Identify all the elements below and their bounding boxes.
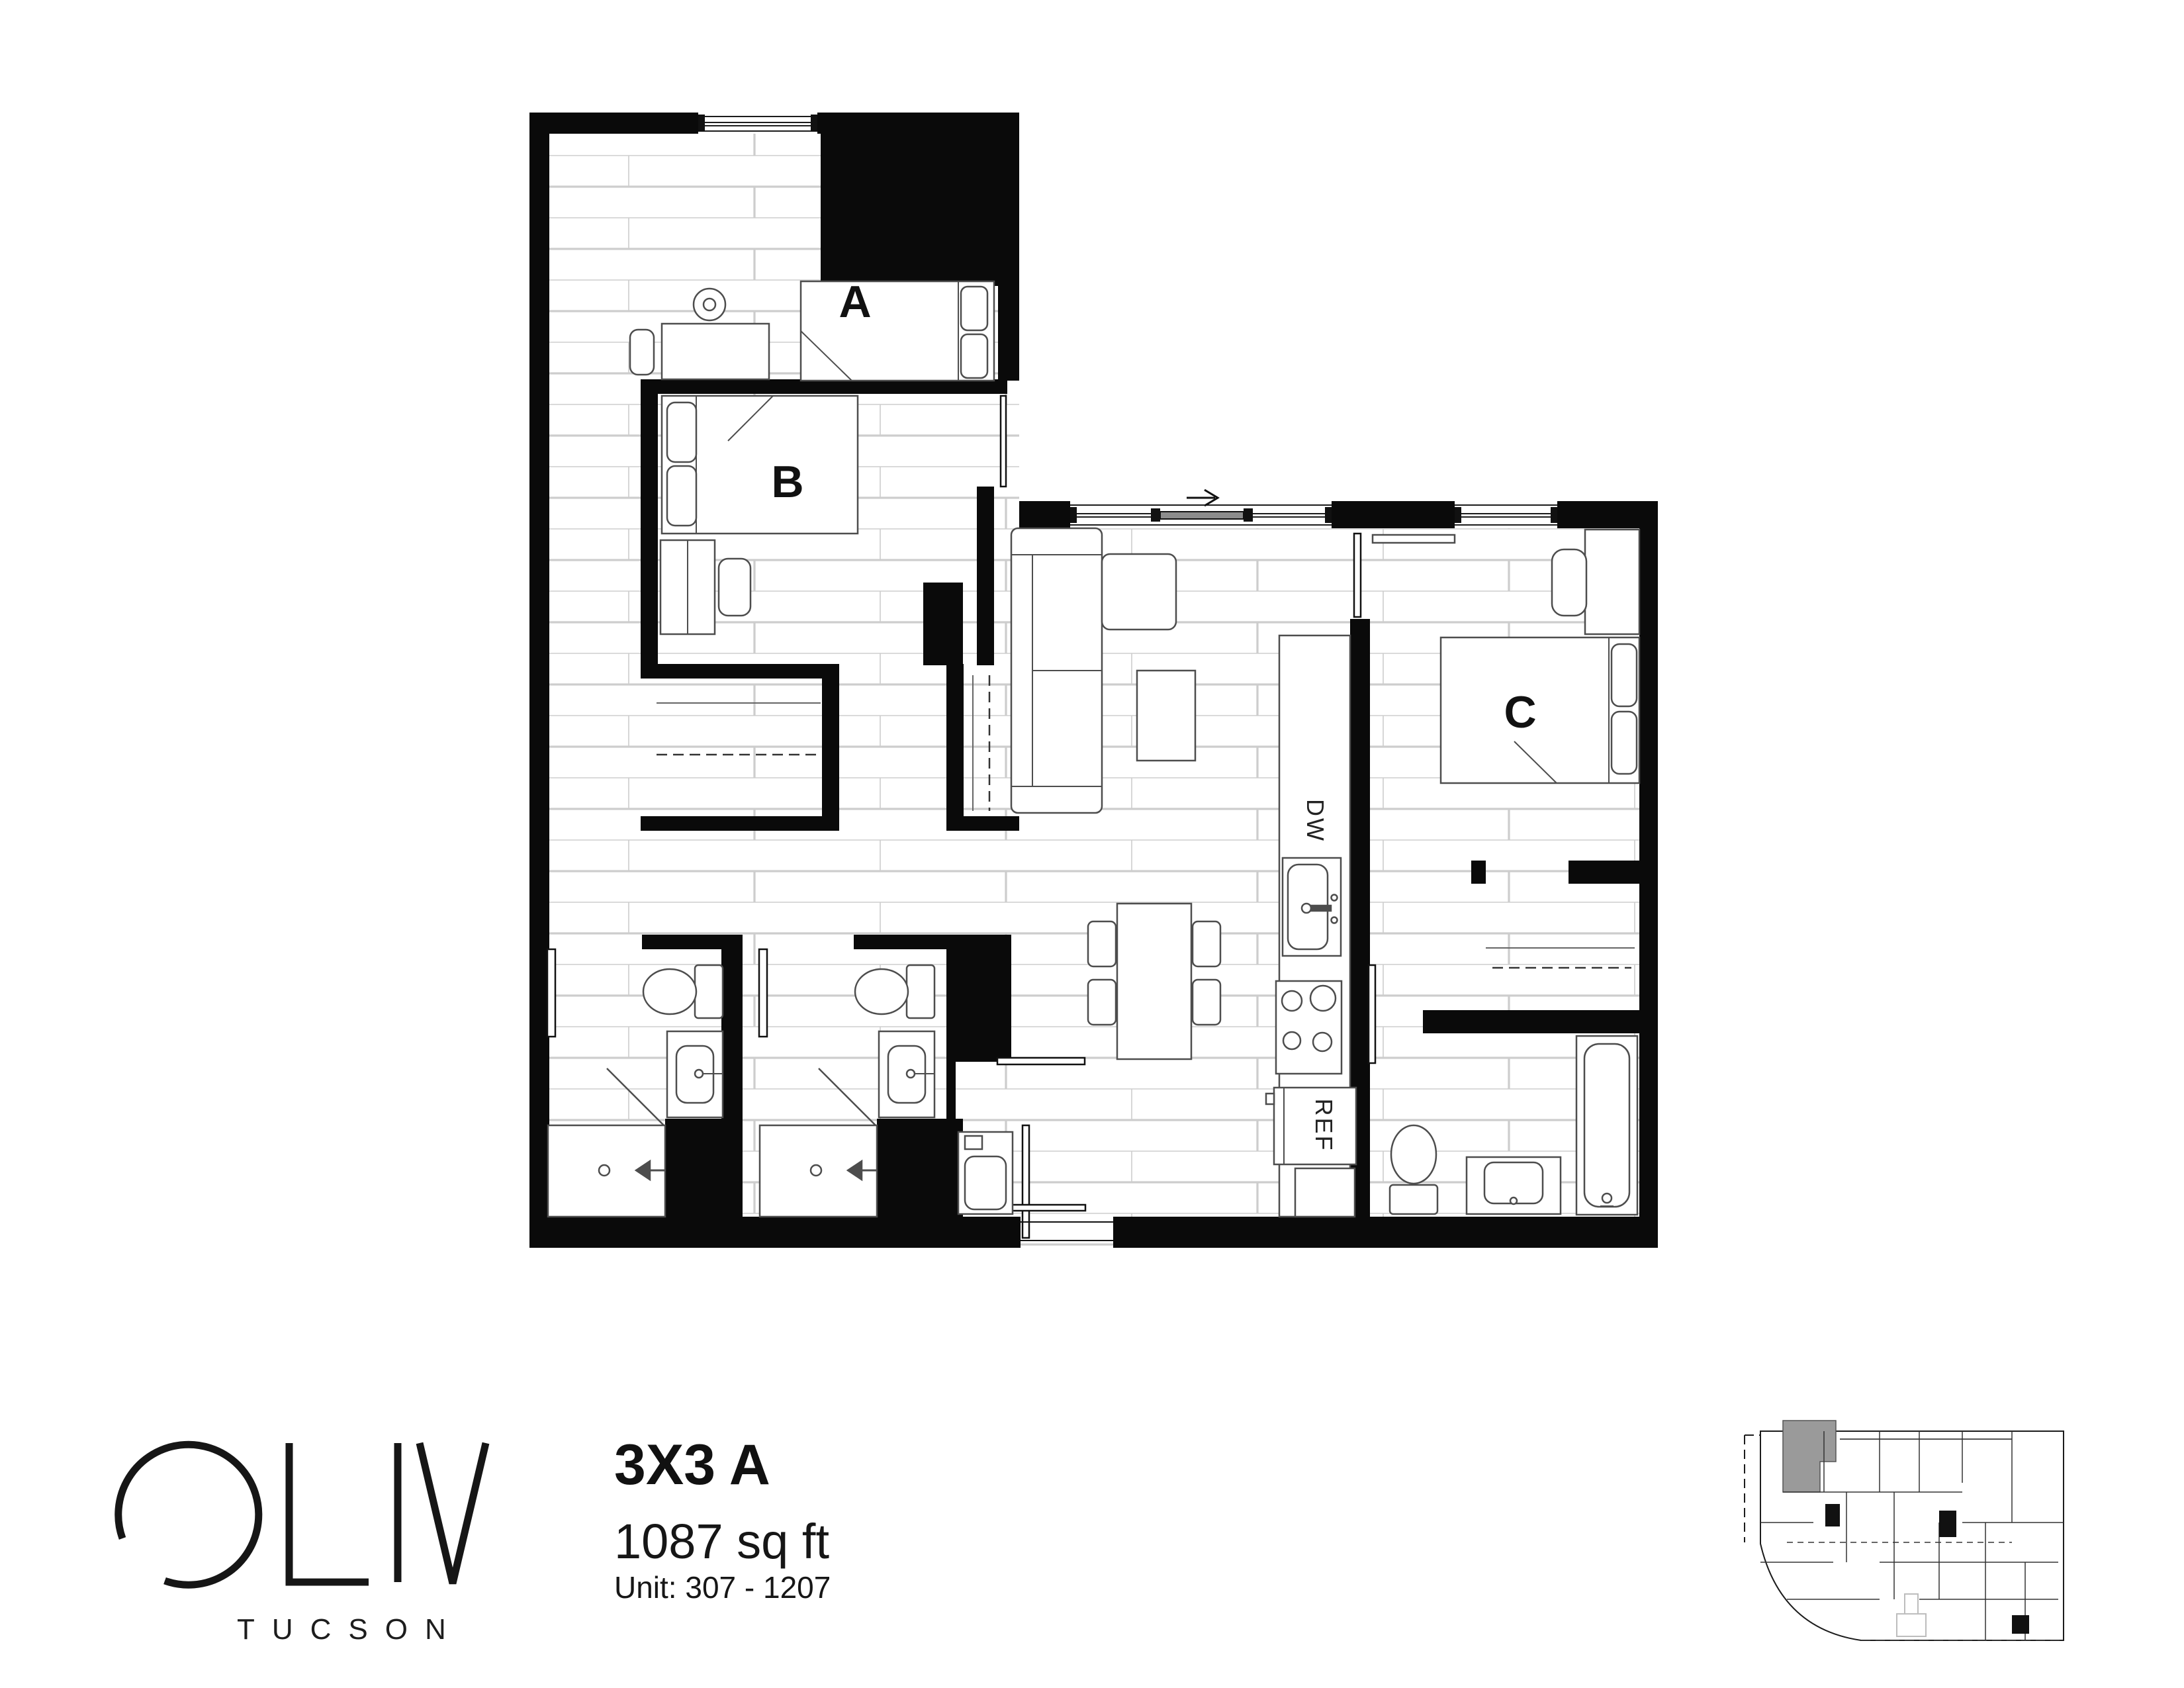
- room-label-b: B: [771, 457, 803, 507]
- room-label-c: C: [1504, 687, 1536, 737]
- floorplan-sheet: A B C DW REF TUCSON 3X3 A 1087 sq ft Uni…: [0, 0, 2184, 1688]
- room-label-a: A: [839, 277, 871, 327]
- dining-chair: [1193, 980, 1220, 1025]
- plan-area: 1087 sq ft: [614, 1514, 829, 1569]
- bed-a: [801, 281, 994, 381]
- plan-name: 3X3 A: [614, 1433, 770, 1497]
- toilet-icon: [1390, 1125, 1437, 1214]
- key-plan-faint-unit: [1897, 1594, 1926, 1636]
- door-hall: [1011, 1205, 1085, 1211]
- console-shelf: [1373, 535, 1455, 543]
- logo-v-glyph: [420, 1443, 486, 1583]
- dining-chair: [1193, 921, 1220, 966]
- dishwasher-label: DW: [1302, 799, 1329, 843]
- toilet-icon: [643, 965, 723, 1018]
- door-bath-1: [547, 949, 555, 1037]
- dining-chair: [1088, 980, 1116, 1025]
- bed-c: [1441, 637, 1639, 783]
- window-bedroom-a: [698, 113, 817, 134]
- bath1-vanity-sink-icon: [667, 1031, 723, 1117]
- refrigerator-label: REF: [1310, 1099, 1338, 1152]
- toilet-icon: [855, 965, 934, 1018]
- kitchen-sink-icon: [1283, 858, 1341, 956]
- door-laundry: [997, 1058, 1085, 1064]
- chair-c: [1552, 549, 1586, 616]
- stove-icon: [1276, 981, 1342, 1074]
- floor-plan-svg: A B C DW REF TUCSON 3X3 A 1087 sq ft Uni…: [0, 0, 2184, 1688]
- window-bedroom-c: [1455, 501, 1557, 528]
- key-plan-unit-highlight: [1783, 1421, 1836, 1492]
- sliding-door-panel: [1160, 512, 1244, 519]
- dining-chair: [1088, 921, 1116, 966]
- door-bath-c: [1369, 965, 1375, 1063]
- door-balcony: [1023, 1125, 1029, 1238]
- plant-icon-center: [704, 299, 715, 310]
- key-plan: [1745, 1421, 2064, 1640]
- logo-o-glyph: [118, 1444, 259, 1585]
- bathtub-icon: [1576, 1036, 1637, 1215]
- sofa-chaise: [1102, 554, 1176, 630]
- chair-a: [630, 330, 654, 375]
- bed-b: [662, 396, 858, 534]
- coffee-table: [1137, 671, 1195, 761]
- title-block: 3X3 A 1087 sq ft Unit: 307 - 1207: [614, 1433, 831, 1605]
- door-bedroom-c: [1354, 534, 1361, 617]
- desk-c: [1585, 530, 1639, 634]
- kitchen-cabinet: [1295, 1168, 1355, 1217]
- bathc-vanity-sink-icon: [1467, 1157, 1561, 1214]
- door-bath-2: [759, 949, 767, 1037]
- dining-table: [1117, 904, 1191, 1059]
- structural-corner-mass: [821, 113, 1019, 286]
- plan-unit-range: Unit: 307 - 1207: [614, 1570, 831, 1605]
- logo-l-glyph: [289, 1443, 369, 1582]
- brand-logo: TUCSON: [118, 1443, 486, 1646]
- door-bedroom-b: [1001, 396, 1006, 487]
- window-living-slider: [1070, 501, 1332, 528]
- bath2-vanity-sink-icon: [879, 1031, 934, 1117]
- chair-b: [719, 559, 751, 616]
- brand-city: TUCSON: [237, 1613, 463, 1646]
- dresser-b: [660, 540, 715, 634]
- washer-dryer-icon: [958, 1132, 1013, 1214]
